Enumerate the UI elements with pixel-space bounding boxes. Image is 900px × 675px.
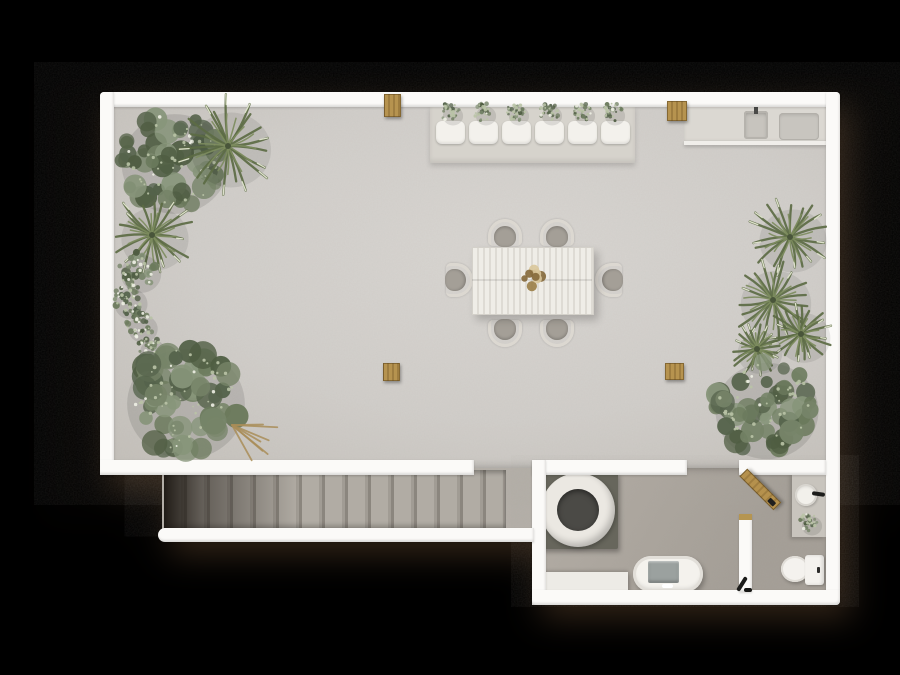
wood-stool-right [665,363,684,380]
bench-cushion [436,121,465,144]
dining-chair [595,263,625,297]
dining-table [472,247,594,315]
stair-treads [164,470,506,528]
wood-stool-left [383,363,400,381]
wall-right [826,92,840,605]
bench-cushion [568,121,597,144]
dining-chair [443,263,473,297]
dining-chair [488,219,522,249]
wall-terrace-bottom-mid [532,460,687,475]
wall-stairs-bottom [158,528,534,542]
dining-table-seam [472,279,592,281]
bench-cushion [469,121,498,144]
dining-chair [488,317,522,347]
floorplan-canvas [0,0,900,675]
counter-front-edge [684,141,826,145]
bench-cushion [535,121,564,144]
wall-left [100,92,114,475]
bench-cushion [601,121,630,144]
floor-plan [0,0,900,675]
oval-bathtub-drain [662,584,673,588]
spa-bench-ledge [538,572,628,592]
kitchen-sink [744,111,768,139]
wall-top [100,92,840,107]
partition-wood-cap [739,514,752,520]
toilet-tank [805,555,824,585]
dining-chair [540,219,574,249]
wall-annex-left [532,460,546,605]
wood-wall-box-left [384,94,401,117]
wall-terrace-bottom-left [100,460,474,475]
kitchen-grill [779,113,819,140]
oval-bathtub-panel [648,561,679,583]
wall-annex-bottom [532,590,840,605]
wood-wall-box-right [667,101,687,121]
round-tub-interior [557,489,599,531]
door-hinge-mark [744,588,752,592]
toilet-flush-button [817,567,820,573]
dining-chair [540,317,574,347]
bench-cushion [502,121,531,144]
